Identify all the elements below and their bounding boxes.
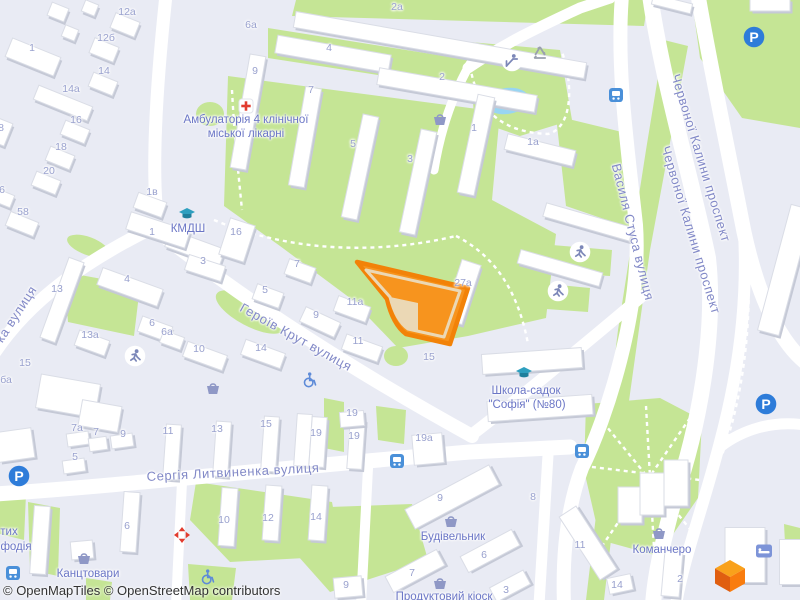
- house-number: 19: [346, 407, 358, 419]
- house-number: 12: [262, 512, 274, 524]
- house-number: 6: [124, 520, 130, 532]
- house-number: 2: [677, 573, 683, 585]
- house-number: 6: [0, 184, 5, 196]
- house-number: 14: [255, 342, 267, 354]
- bus-stop-icon[interactable]: [608, 87, 624, 103]
- house-number: 3: [503, 584, 509, 596]
- house-number: 9: [437, 492, 443, 504]
- house-number: 20: [43, 165, 55, 177]
- house-number: 13: [51, 283, 63, 295]
- bus-stop-icon[interactable]: [5, 565, 21, 581]
- parking-icon[interactable]: P: [8, 465, 30, 487]
- street-name-label: Червоної Калини проспект: [658, 144, 723, 316]
- playground-icon[interactable]: [501, 50, 523, 72]
- house-number: 6: [149, 317, 155, 329]
- shop-icon[interactable]: [432, 576, 448, 591]
- shop-icon[interactable]: [651, 526, 667, 541]
- sports-icon[interactable]: [569, 241, 591, 263]
- medical-marker-icon[interactable]: [174, 527, 191, 544]
- house-number: 1: [471, 122, 477, 134]
- poi-label: тих: [0, 526, 17, 538]
- house-number: 13: [211, 423, 223, 435]
- house-number: 15: [423, 351, 435, 363]
- house-number: 15: [260, 418, 272, 430]
- street-name-label: Червоної Калини проспект: [668, 72, 733, 244]
- house-number: 1в: [146, 186, 157, 198]
- svg-text:P: P: [749, 29, 758, 45]
- street-name-label: ка вулиця: [0, 283, 40, 345]
- recycling-icon[interactable]: [531, 45, 549, 62]
- house-number: 16: [230, 226, 242, 238]
- bus-stop-icon[interactable]: [574, 443, 590, 459]
- poi-label: Амбулаторія 4 клінічної: [184, 114, 309, 126]
- education-icon[interactable]: [178, 207, 196, 221]
- house-number: 12а: [118, 6, 136, 18]
- house-number: 11а: [347, 296, 364, 308]
- house-number: 5: [262, 284, 268, 296]
- map-canvas[interactable]: P P P 112а12б1414а16182058862а4296а75311…: [0, 0, 800, 600]
- house-number: 4: [326, 42, 332, 54]
- house-number: 14: [310, 511, 322, 523]
- poi-label: Будівельник: [421, 531, 485, 543]
- house-number: 19: [310, 427, 322, 439]
- hospital-icon[interactable]: [239, 99, 254, 114]
- poi-label: міської лікарні: [208, 128, 284, 140]
- house-number: 7: [294, 258, 300, 270]
- street-name-label: Героїв Крут вулиця: [237, 300, 354, 374]
- house-number: 13а: [81, 329, 99, 341]
- accessibility-icon[interactable]: [302, 372, 319, 389]
- house-number: 1: [149, 226, 155, 238]
- house-number: 9: [252, 65, 258, 77]
- parking-icon[interactable]: P: [743, 26, 765, 48]
- svg-text:P: P: [14, 468, 23, 484]
- house-number: ба: [0, 374, 12, 386]
- house-number: 6а: [161, 326, 173, 338]
- map-overlay: P P P 112а12б1414а16182058862а4296а75311…: [0, 0, 800, 600]
- house-number: 7: [93, 426, 99, 438]
- house-number: 7: [409, 567, 415, 579]
- house-number: 19а: [415, 432, 433, 444]
- house-number: 11: [163, 425, 174, 437]
- house-number: 9: [313, 309, 319, 321]
- house-number: 8: [530, 491, 536, 503]
- lodging-icon[interactable]: [756, 544, 773, 558]
- house-number: 4: [124, 273, 130, 285]
- poi-label: КМДШ: [171, 223, 206, 235]
- house-number: 1а: [527, 136, 539, 148]
- house-number: 7: [308, 84, 314, 96]
- house-number: 14: [98, 65, 110, 77]
- sports-icon[interactable]: [124, 345, 146, 367]
- house-number: 19: [348, 430, 360, 442]
- poi-label: фодія: [0, 541, 31, 553]
- house-number: 27а: [454, 277, 472, 289]
- poi-label: Канцтовари: [57, 568, 120, 580]
- house-number: 9: [343, 579, 349, 591]
- house-number: 9: [120, 428, 126, 440]
- bus-stop-icon[interactable]: [389, 453, 405, 469]
- street-name-label: Василя Стуса вулиця: [609, 162, 658, 302]
- shop-icon[interactable]: [76, 551, 92, 566]
- house-number: 5: [350, 138, 356, 150]
- house-number: 3: [200, 255, 206, 267]
- shop-icon[interactable]: [205, 381, 221, 396]
- poi-label: Команчеро: [633, 544, 692, 556]
- street-name-label: Сергія Литвиненка вулиця: [146, 460, 320, 484]
- house-number: 58: [17, 206, 29, 218]
- house-number: 6: [481, 549, 487, 561]
- house-number: 16: [70, 114, 82, 126]
- maptiler-logo-icon[interactable]: [714, 559, 746, 593]
- house-number: 5: [72, 451, 78, 463]
- house-number: 11: [353, 335, 364, 347]
- house-number: 8: [0, 122, 4, 134]
- house-number: 3: [407, 153, 413, 165]
- house-number: 14а: [62, 83, 80, 95]
- parking-icon[interactable]: P: [755, 393, 777, 415]
- attribution[interactable]: © OpenMapTiles © OpenStreetMap contribut…: [3, 583, 280, 598]
- house-number: 18: [55, 141, 67, 153]
- house-number: 2а: [391, 1, 403, 13]
- house-number: 10: [218, 514, 230, 526]
- svg-text:P: P: [761, 396, 770, 412]
- sports-icon[interactable]: [547, 280, 569, 302]
- house-number: 10: [193, 343, 205, 355]
- house-number: 7а: [71, 422, 83, 434]
- house-number: 15: [19, 357, 31, 369]
- house-number: 6а: [245, 19, 257, 31]
- poi-label: Продуктовий кіоск: [396, 591, 493, 600]
- education-icon[interactable]: [515, 366, 533, 380]
- house-number: 12б: [97, 32, 115, 44]
- poi-label: "Софія" (№80): [488, 399, 565, 411]
- house-number: 14: [611, 579, 623, 591]
- poi-label: Школа-садок: [491, 385, 560, 397]
- house-number: 1: [29, 42, 35, 54]
- shop-icon[interactable]: [432, 112, 448, 127]
- house-number: 2: [439, 71, 445, 83]
- house-number: 11: [575, 539, 586, 551]
- shop-icon[interactable]: [443, 514, 459, 529]
